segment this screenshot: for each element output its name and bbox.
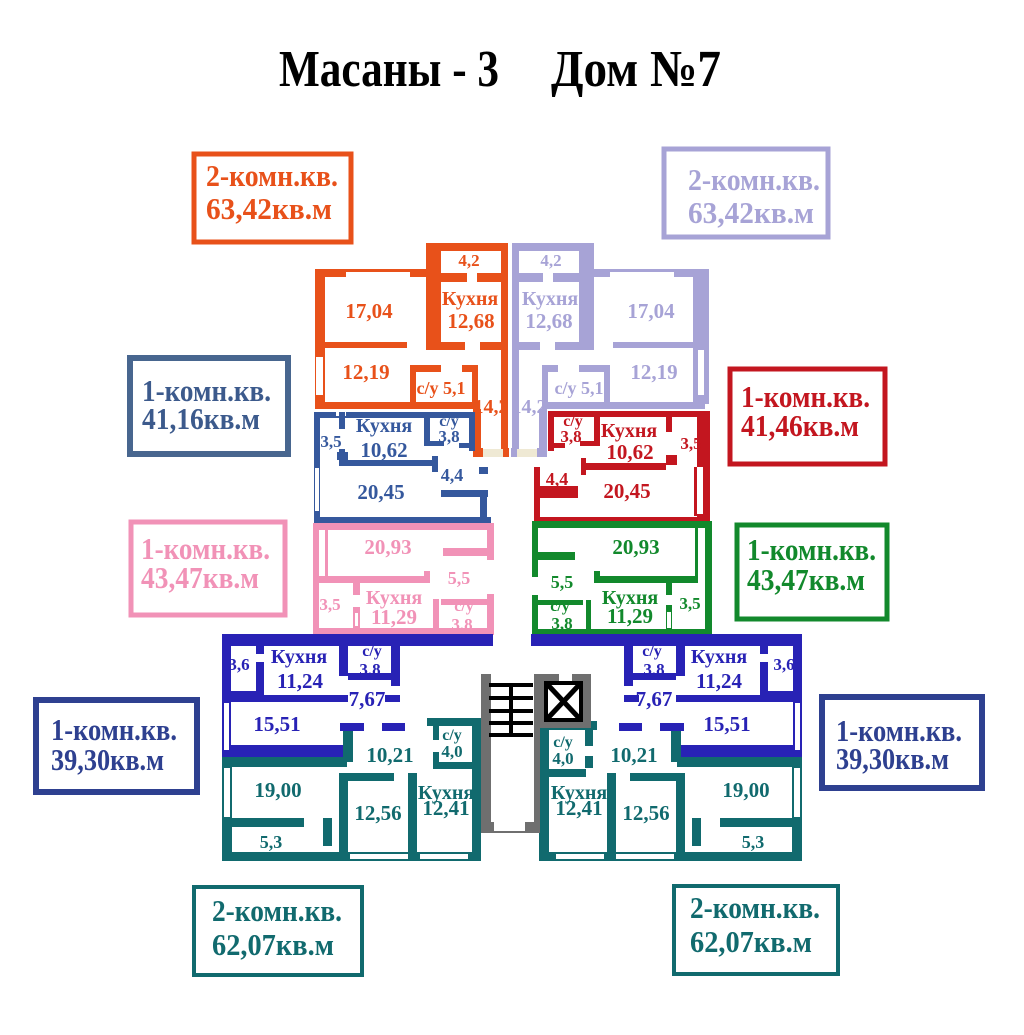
svg-text:17,04: 17,04 bbox=[345, 299, 393, 323]
svg-text:3,8: 3,8 bbox=[359, 660, 380, 679]
svg-text:4,2: 4,2 bbox=[458, 251, 479, 270]
svg-text:3,6: 3,6 bbox=[228, 655, 249, 674]
svg-text:3,5: 3,5 bbox=[319, 595, 340, 614]
svg-text:4,0: 4,0 bbox=[441, 742, 462, 761]
svg-text:62,07кв.м: 62,07кв.м bbox=[212, 927, 334, 962]
svg-text:12,41: 12,41 bbox=[422, 796, 469, 820]
svg-text:43,47кв.м: 43,47кв.м bbox=[747, 562, 865, 597]
svg-text:с/у: с/у bbox=[362, 643, 382, 660]
svg-text:10,62: 10,62 bbox=[360, 438, 407, 462]
svg-text:Дом №7: Дом №7 bbox=[551, 41, 721, 98]
svg-text:11,29: 11,29 bbox=[371, 605, 417, 629]
svg-text:12,41: 12,41 bbox=[555, 796, 602, 820]
svg-text:62,07кв.м: 62,07кв.м bbox=[690, 924, 812, 959]
svg-text:12,19: 12,19 bbox=[630, 360, 677, 384]
svg-text:12,68: 12,68 bbox=[525, 309, 572, 333]
svg-text:с/у: с/у bbox=[454, 598, 474, 615]
svg-text:4,4: 4,4 bbox=[546, 469, 569, 489]
svg-text:12,56: 12,56 bbox=[622, 801, 669, 825]
svg-text:3,8: 3,8 bbox=[451, 615, 472, 634]
svg-text:3,6: 3,6 bbox=[773, 655, 794, 674]
svg-text:11,29: 11,29 bbox=[607, 604, 653, 628]
svg-text:10,21: 10,21 bbox=[366, 743, 413, 767]
svg-text:с/у: с/у bbox=[642, 643, 662, 660]
svg-text:Кухня: Кухня bbox=[356, 415, 413, 437]
svg-text:19,00: 19,00 bbox=[722, 778, 769, 802]
svg-text:20,45: 20,45 bbox=[357, 480, 404, 504]
svg-text:20,45: 20,45 bbox=[603, 479, 650, 503]
svg-text:5,3: 5,3 bbox=[260, 832, 283, 852]
svg-text:3,5: 3,5 bbox=[320, 432, 341, 451]
svg-text:11,24: 11,24 bbox=[277, 669, 324, 693]
svg-text:7,67: 7,67 bbox=[349, 687, 386, 711]
svg-text:15,51: 15,51 bbox=[253, 712, 300, 736]
svg-text:2-комн.кв.: 2-комн.кв. bbox=[688, 162, 820, 197]
svg-text:10,21: 10,21 bbox=[610, 743, 657, 767]
svg-text:4,2: 4,2 bbox=[540, 251, 561, 270]
svg-text:11,24: 11,24 bbox=[696, 669, 743, 693]
svg-text:3,8: 3,8 bbox=[551, 614, 572, 633]
svg-text:43,47кв.м: 43,47кв.м bbox=[141, 560, 259, 595]
svg-text:5,5: 5,5 bbox=[448, 568, 471, 588]
svg-text:12,56: 12,56 bbox=[354, 801, 401, 825]
svg-text:20,93: 20,93 bbox=[612, 535, 659, 559]
svg-text:63,42кв.м: 63,42кв.м bbox=[688, 195, 814, 230]
svg-text:Кухня: Кухня bbox=[271, 646, 328, 668]
svg-text:2-комн.кв.: 2-комн.кв. bbox=[690, 890, 820, 925]
svg-text:Кухня: Кухня bbox=[691, 646, 748, 668]
svg-text:4,4: 4,4 bbox=[441, 465, 464, 485]
svg-text:41,16кв.м: 41,16кв.м bbox=[142, 401, 260, 436]
svg-text:с/у 5,1: с/у 5,1 bbox=[555, 378, 604, 398]
svg-text:20,93: 20,93 bbox=[364, 535, 411, 559]
svg-text:12,68: 12,68 bbox=[447, 309, 494, 333]
svg-text:3,5: 3,5 bbox=[679, 594, 700, 613]
svg-text:17,04: 17,04 bbox=[627, 299, 675, 323]
svg-text:3,5: 3,5 bbox=[680, 434, 701, 453]
svg-text:41,46кв.м: 41,46кв.м bbox=[741, 408, 859, 443]
svg-text:39,30кв.м: 39,30кв.м bbox=[51, 742, 164, 777]
svg-text:с/у: с/у bbox=[550, 598, 570, 615]
svg-text:12,19: 12,19 bbox=[342, 360, 389, 384]
svg-text:5,5: 5,5 bbox=[551, 572, 574, 592]
svg-text:Кухня: Кухня bbox=[522, 288, 579, 310]
svg-text:39,30кв.м: 39,30кв.м bbox=[836, 741, 949, 776]
svg-text:19,00: 19,00 bbox=[254, 778, 301, 802]
svg-text:3,8: 3,8 bbox=[643, 660, 664, 679]
svg-text:4,0: 4,0 bbox=[552, 749, 573, 768]
svg-text:15,51: 15,51 bbox=[703, 712, 750, 736]
svg-text:7,67: 7,67 bbox=[636, 687, 673, 711]
svg-text:14,2: 14,2 bbox=[512, 396, 547, 418]
svg-text:с/у 5,1: с/у 5,1 bbox=[417, 378, 466, 398]
svg-text:14,2: 14,2 bbox=[474, 396, 509, 418]
svg-text:Кухня: Кухня bbox=[601, 420, 658, 442]
svg-text:Кухня: Кухня bbox=[442, 288, 499, 310]
svg-text:3,8: 3,8 bbox=[560, 427, 581, 446]
svg-text:10,62: 10,62 bbox=[606, 440, 653, 464]
svg-text:5,3: 5,3 bbox=[742, 832, 765, 852]
svg-text:Масаны - 3: Масаны - 3 bbox=[279, 41, 499, 98]
svg-text:63,42кв.м: 63,42кв.м bbox=[206, 191, 332, 226]
svg-text:2-комн.кв.: 2-комн.кв. bbox=[212, 893, 342, 928]
svg-text:3,8: 3,8 bbox=[438, 427, 459, 446]
svg-text:2-комн.кв.: 2-комн.кв. bbox=[206, 158, 338, 193]
